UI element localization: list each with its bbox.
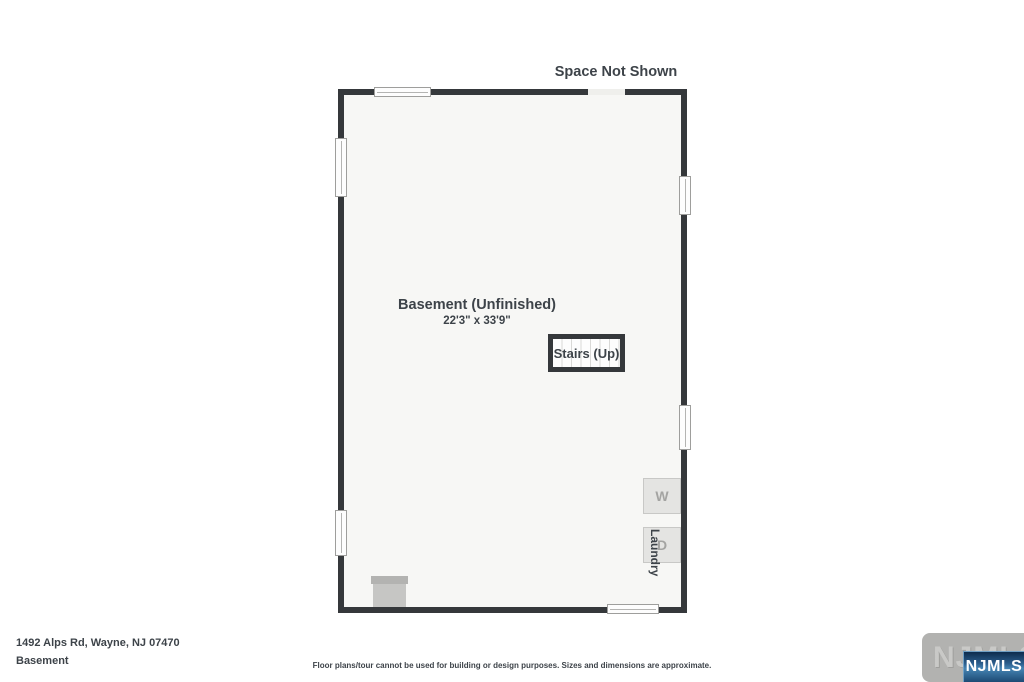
utility-block-top — [371, 576, 408, 584]
window-left-upper — [335, 138, 347, 197]
window-right-upper — [679, 176, 691, 215]
floor-name: Basement — [16, 655, 69, 667]
room-label: Basement (Unfinished) 22'3" x 33'9" — [377, 297, 577, 327]
stairs: Stairs (Up) — [548, 334, 625, 372]
laundry-label: Laundry — [648, 529, 662, 586]
wall-opening — [588, 89, 625, 95]
room-name: Basement (Unfinished) — [377, 297, 577, 313]
disclaimer-text: Floor plans/tour cannot be used for buil… — [262, 661, 762, 670]
njmls-logo-text: NJMLS — [966, 658, 1023, 676]
window-top — [374, 87, 431, 97]
property-address: 1492 Alps Rd, Wayne, NJ 07470 — [16, 637, 180, 649]
stairs-label: Stairs (Up) — [554, 346, 620, 361]
floor-plan-page: Space Not Shown Basement (Unfinished) 22… — [0, 0, 1024, 682]
window-bottom — [607, 604, 659, 614]
basement-room-outline — [338, 89, 687, 613]
window-left-lower — [335, 510, 347, 556]
room-dimensions: 22'3" x 33'9" — [377, 315, 577, 327]
space-not-shown-label: Space Not Shown — [516, 64, 716, 80]
utility-block — [373, 584, 406, 607]
window-right-lower — [679, 405, 691, 450]
njmls-logo: NJMLS — [963, 651, 1024, 682]
washer: W — [643, 478, 681, 514]
